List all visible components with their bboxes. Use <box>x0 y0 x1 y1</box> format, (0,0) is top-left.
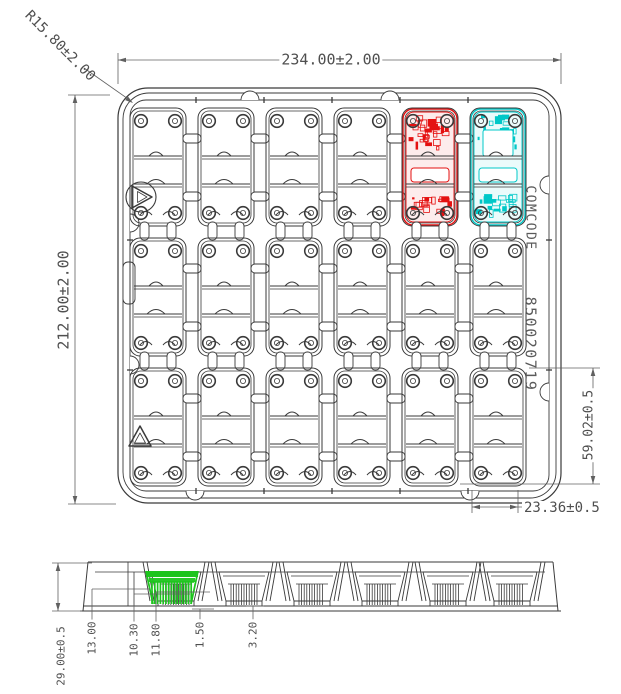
side-dim-13-label: 13.00 <box>87 619 98 656</box>
dim-width-label: 234.00±2.00 <box>279 53 382 68</box>
pocket-grid <box>130 108 526 486</box>
tray-side-view <box>52 562 561 623</box>
side-dim-3-20-label: 3.20 <box>248 620 259 651</box>
pocket-r3c6 <box>470 368 526 486</box>
pocket-r3c4 <box>334 368 390 486</box>
pocket-r2c2 <box>198 238 254 356</box>
pocket-r3c5 <box>402 368 458 486</box>
pocket-r3c1 <box>130 368 186 486</box>
drawing-canvas: 234.00±2.00 212.00±2.00 R15.80±2.00 59.0… <box>0 0 621 694</box>
pocket-r1c6 <box>470 108 526 226</box>
tray-marking-number: 850020719 <box>523 295 538 394</box>
pocket-r1c4 <box>334 108 390 226</box>
pocket-r2c3 <box>266 238 322 356</box>
pocket-r2c6 <box>470 238 526 356</box>
pocket-r2c5 <box>402 238 458 356</box>
pocket-r1c2 <box>198 108 254 226</box>
side-dim-total-height-label: 29.00±0.5 <box>56 624 67 688</box>
tray-marking-code: COMCODE <box>524 183 537 252</box>
pocket-r2c4 <box>334 238 390 356</box>
pocket-r2c1 <box>130 238 186 356</box>
pocket-r1c5 <box>402 108 458 226</box>
pocket-r3c2 <box>198 368 254 486</box>
pocket-r3c3 <box>266 368 322 486</box>
side-dim-1-50-label: 1.50 <box>195 620 206 651</box>
side-dim-10-30-label: 10.30 <box>129 621 140 658</box>
dim-height-label: 212.00±2.00 <box>57 248 72 351</box>
dim-pocket-height-label: 59.02±0.5 <box>583 388 596 462</box>
side-dim-11-80-label: 11.80 <box>151 621 162 658</box>
dim-pocket-width-label: 23.36±0.5 <box>522 501 602 515</box>
pocket-r1c1 <box>130 108 186 226</box>
pocket-r1c3 <box>266 108 322 226</box>
